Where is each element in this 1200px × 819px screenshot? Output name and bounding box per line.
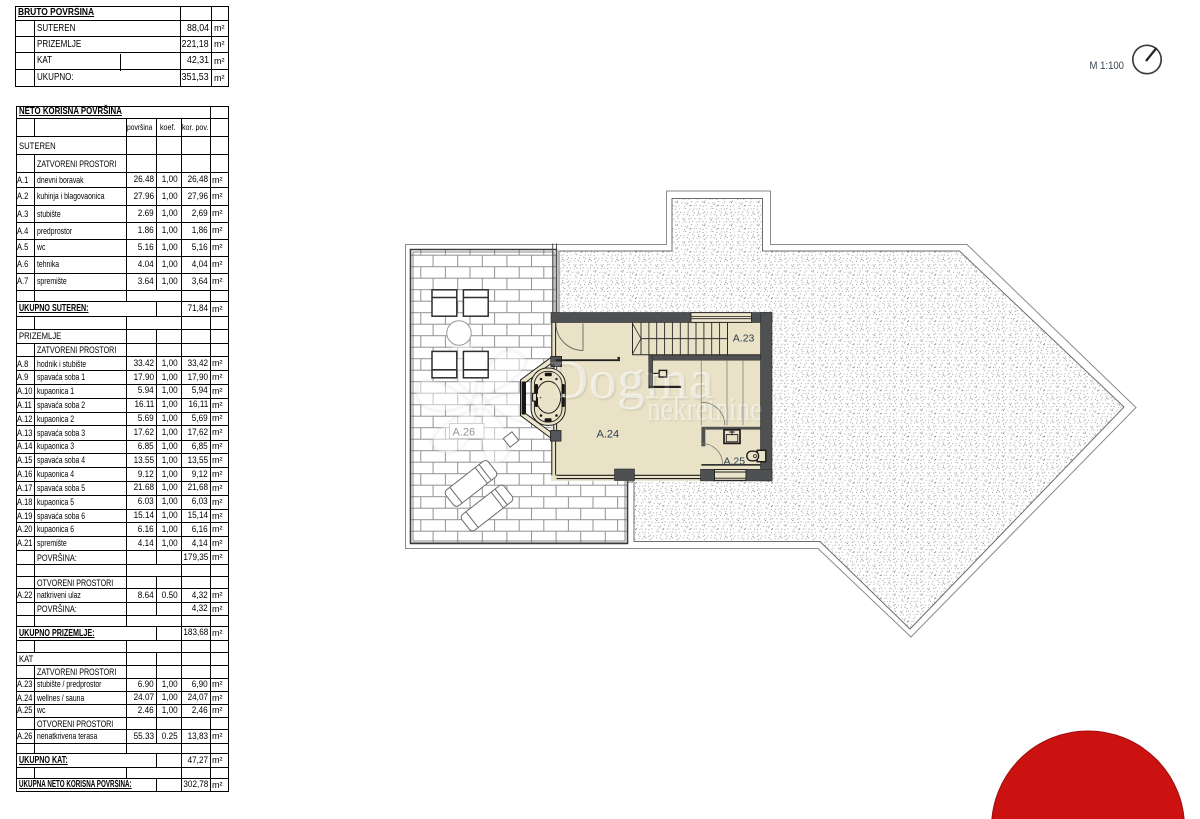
svg-text:A.23: A.23: [733, 332, 755, 344]
svg-text:nekretnine: nekretnine: [647, 391, 762, 428]
svg-text:A.26: A.26: [453, 426, 476, 438]
svg-text:A.25: A.25: [724, 455, 746, 467]
svg-text:M 1:100: M 1:100: [1090, 60, 1125, 72]
svg-text:A.24: A.24: [597, 429, 620, 441]
